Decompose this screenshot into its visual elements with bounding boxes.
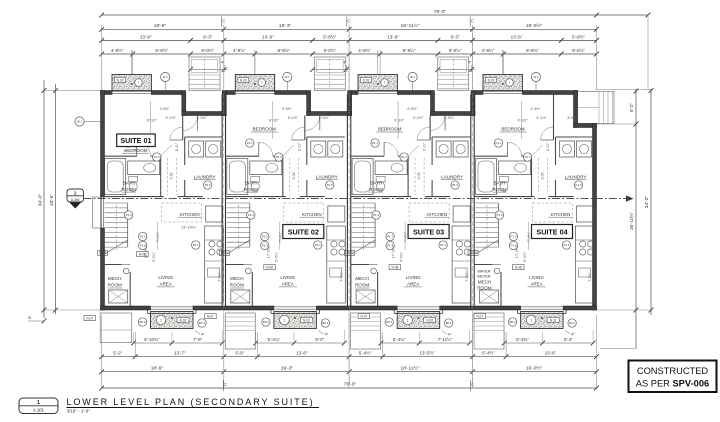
svg-text:5'-10¾": 5'-10¾" [144, 337, 160, 342]
svg-text:AREA: AREA [407, 282, 419, 287]
svg-text:5'-9½": 5'-9½" [572, 33, 585, 39]
svg-text:1: 1 [37, 400, 40, 406]
svg-text:P1.1: P1.1 [564, 243, 570, 247]
svg-text:LAUNDRY: LAUNDRY [565, 174, 587, 179]
svg-text:18'-11½": 18'-11½" [401, 365, 420, 372]
svg-text:7'-11½": 7'-11½" [438, 336, 453, 342]
svg-text:5'-3¾": 5'-3¾" [516, 337, 529, 342]
svg-text:76'-0": 76'-0" [344, 382, 357, 388]
svg-text:13'-6": 13'-6" [511, 34, 523, 39]
svg-text:7'-5¾": 7'-5¾" [588, 271, 592, 281]
svg-text:SUITE 04: SUITE 04 [536, 227, 567, 236]
svg-text:SUITE 01: SUITE 01 [120, 136, 151, 145]
svg-text:P1.1: P1.1 [247, 141, 253, 145]
svg-text:C: C [347, 19, 350, 24]
svg-text:N.07: N.07 [361, 315, 368, 319]
svg-text:D.08: D.08 [541, 172, 545, 179]
svg-text:LOWER LEVEL PLAN (SECONDARY SU: LOWER LEVEL PLAN (SECONDARY SUITE) [67, 397, 315, 407]
svg-text:P1.3: P1.3 [497, 213, 503, 217]
svg-text:MECH: MECH [108, 276, 122, 281]
svg-text:19'-3": 19'-3" [281, 366, 294, 372]
svg-text:5'-4¾": 5'-4¾" [267, 337, 280, 342]
svg-text:KITCHEN: KITCHEN [180, 212, 200, 217]
svg-text:1: 1 [407, 318, 409, 322]
svg-text:LIVING: LIVING [158, 275, 173, 280]
svg-text:AREA: AREA [530, 282, 542, 287]
svg-text:4'-1½": 4'-1½" [413, 116, 424, 120]
svg-text:N.02: N.02 [426, 318, 433, 322]
svg-text:8": 8" [27, 315, 32, 319]
svg-text:4'-9¾": 4'-9¾" [319, 116, 330, 120]
svg-text:1: 1 [530, 318, 532, 322]
svg-text:9'-10": 9'-10" [269, 118, 280, 123]
svg-text:4'-9¾": 4'-9¾" [196, 116, 207, 120]
svg-text:9'-10": 9'-10" [517, 118, 528, 123]
svg-text:4'-9¾": 4'-9¾" [444, 116, 455, 120]
svg-text:33'-6": 33'-6" [49, 194, 54, 206]
svg-text:8'-9½": 8'-9½" [155, 47, 168, 53]
svg-text:13'-9": 13'-9" [262, 34, 274, 39]
svg-text:BEDROOM: BEDROOM [253, 127, 277, 132]
svg-text:ROOM: ROOM [355, 283, 369, 288]
svg-text:W.1: W.1 [410, 75, 415, 79]
svg-text:34'-0": 34'-0" [38, 194, 44, 207]
svg-text:P1.1: P1.1 [496, 141, 502, 145]
svg-text:B0.2: B0.2 [140, 320, 146, 324]
svg-text:BATH: BATH [370, 181, 382, 186]
svg-text:7'-4¾": 7'-4¾" [527, 231, 531, 242]
svg-text:B0.2: B0.2 [510, 320, 516, 324]
svg-text:P1.4: P1.4 [154, 155, 160, 159]
svg-text:18'-11½": 18'-11½" [401, 22, 420, 29]
svg-text:MECH: MECH [478, 280, 492, 285]
svg-text:P1.3: P1.3 [126, 213, 132, 217]
svg-text:W.1: W.1 [285, 75, 290, 79]
svg-text:P1.1: P1.1 [372, 141, 378, 145]
svg-text:AS PER SPV-006: AS PER SPV-006 [636, 379, 709, 389]
svg-text:1: 1 [284, 318, 286, 322]
svg-text:18'-9": 18'-9" [151, 366, 164, 372]
svg-text:5'-4½": 5'-4½" [359, 350, 372, 356]
svg-text:C: C [471, 19, 474, 24]
svg-text:4": 4" [221, 60, 225, 65]
svg-text:13'-7": 13'-7" [174, 351, 186, 356]
svg-text:N.02: N.02 [488, 78, 495, 82]
svg-text:13'-5½": 13'-5½" [419, 350, 435, 356]
svg-text:18'-9": 18'-9" [154, 23, 167, 29]
svg-text:ROOM: ROOM [122, 187, 136, 192]
svg-text:BEDROOM: BEDROOM [501, 127, 525, 132]
svg-text:C: C [222, 19, 225, 24]
svg-text:9'-0½": 9'-0½" [201, 47, 214, 53]
svg-text:P1.4: P1.4 [276, 155, 282, 159]
svg-text:4'-9¾": 4'-9¾" [567, 116, 578, 120]
svg-text:LIVING: LIVING [529, 275, 544, 280]
svg-text:5'-0¾": 5'-0¾" [274, 251, 278, 262]
svg-text:W.1: W.1 [77, 120, 82, 124]
svg-text:P1.3: P1.3 [262, 235, 268, 239]
svg-text:B0.1: B0.1 [446, 321, 452, 325]
svg-text:5'-4¾": 5'-4¾" [393, 337, 406, 342]
svg-text:4": 4" [325, 332, 329, 337]
svg-text:17'-3¾": 17'-3¾" [392, 245, 396, 258]
svg-text:P1.3: P1.3 [248, 213, 254, 217]
svg-text:BATH: BATH [123, 181, 135, 186]
svg-text:4": 4" [448, 332, 452, 337]
svg-text:N.07: N.07 [86, 317, 93, 321]
svg-text:AREA: AREA [282, 282, 294, 287]
svg-text:7'-4¾": 7'-4¾" [278, 231, 282, 242]
svg-text:5'-2": 5'-2" [629, 103, 634, 112]
svg-text:5'-9": 5'-9" [235, 351, 244, 356]
svg-text:METER: METER [477, 275, 491, 279]
svg-text:7'-4¾": 7'-4¾" [156, 231, 160, 242]
svg-text:P1.4: P1.4 [525, 155, 531, 159]
svg-text:P1.6: P1.6 [452, 183, 458, 187]
svg-text:D.08: D.08 [417, 172, 421, 179]
svg-text:8'-4": 8'-4" [564, 337, 573, 342]
svg-text:P1.6: P1.6 [327, 183, 333, 187]
svg-text:N.08: N.08 [515, 266, 522, 270]
svg-text:N.02: N.02 [180, 318, 187, 322]
svg-text:6'-11": 6'-11" [423, 142, 427, 151]
svg-text:9'-0½": 9'-0½" [323, 47, 336, 53]
svg-text:WATER: WATER [477, 270, 491, 274]
svg-text:4'-1½": 4'-1½" [165, 116, 176, 120]
svg-text:A.101: A.101 [33, 408, 45, 413]
svg-text:4'-9½": 4'-9½" [233, 47, 246, 53]
svg-text:P1.4: P1.4 [401, 155, 407, 159]
svg-text:N.02: N.02 [240, 78, 247, 82]
svg-text:13'-6": 13'-6" [545, 351, 557, 356]
svg-text:26'-10½": 26'-10½" [628, 212, 634, 230]
svg-text:4'-9½": 4'-9½" [111, 47, 124, 53]
svg-text:P1.1: P1.1 [440, 243, 446, 247]
svg-text:KITCHEN: KITCHEN [427, 212, 447, 217]
svg-text:B0.2: B0.2 [386, 320, 392, 324]
svg-text:P1.6: P1.6 [576, 183, 582, 187]
svg-text:76'-0": 76'-0" [434, 9, 447, 15]
svg-text:9'-10": 9'-10" [394, 118, 405, 123]
svg-text:ROOM: ROOM [230, 283, 244, 288]
svg-text:B0.1: B0.1 [199, 321, 205, 325]
svg-text:LAUNDRY: LAUNDRY [316, 174, 338, 179]
svg-text:BATH: BATH [245, 181, 257, 186]
svg-text:3/16" - 1'-0": 3/16" - 1'-0" [67, 408, 91, 413]
svg-text:LIVING: LIVING [280, 275, 295, 280]
svg-text:N.07: N.07 [476, 315, 483, 319]
svg-text:4'-5½": 4'-5½" [160, 107, 171, 111]
svg-text:6'-11": 6'-11" [175, 142, 179, 151]
svg-text:ROOM: ROOM [244, 187, 258, 192]
svg-text:13'-6": 13'-6" [296, 351, 308, 356]
svg-text:SUITE 02: SUITE 02 [288, 227, 319, 236]
svg-text:13'-6": 13'-6" [387, 34, 399, 39]
svg-text:N.02: N.02 [550, 318, 557, 322]
svg-text:KITCHEN: KITCHEN [302, 212, 322, 217]
svg-text:P1.3: P1.3 [511, 235, 517, 239]
svg-text:C: C [224, 382, 227, 387]
svg-text:5'-8½": 5'-8½" [323, 33, 336, 39]
svg-text:CONSTRUCTED: CONSTRUCTED [637, 366, 709, 376]
svg-text:17'-3¾": 17'-3¾" [144, 245, 148, 258]
svg-text:8'-9½": 8'-9½" [403, 47, 416, 53]
svg-text:ROOM: ROOM [492, 187, 506, 192]
svg-text:4'-5½": 4'-5½" [531, 107, 542, 111]
svg-text:4'-9½": 4'-9½" [358, 47, 371, 53]
svg-text:7'-4¾": 7'-4¾" [404, 231, 408, 242]
svg-text:SUITE 03: SUITE 03 [413, 227, 444, 236]
svg-text:P1.3: P1.3 [140, 235, 146, 239]
svg-text:BEDROOM: BEDROOM [378, 127, 402, 132]
svg-text:9'-0½": 9'-0½" [449, 47, 462, 53]
svg-text:19'-0½": 19'-0½" [526, 22, 543, 29]
svg-text:MECH: MECH [355, 276, 369, 281]
svg-text:19'-3": 19'-3" [279, 23, 292, 29]
svg-text:9'-3": 9'-3" [203, 34, 213, 39]
svg-text:W.1: W.1 [163, 75, 168, 79]
svg-text:7'-5¾": 7'-5¾" [217, 271, 221, 281]
svg-text:5'-0¾": 5'-0¾" [152, 251, 156, 262]
svg-text:LIVING: LIVING [406, 275, 421, 280]
svg-text:6'-11": 6'-11" [297, 142, 301, 151]
svg-text:4'-1½": 4'-1½" [288, 116, 299, 120]
svg-text:1: 1 [160, 318, 162, 322]
svg-text:P1.1: P1.1 [315, 243, 321, 247]
svg-text:5'-0¾": 5'-0¾" [400, 251, 404, 262]
svg-text:N.08: N.08 [266, 266, 273, 270]
svg-text:D.08: D.08 [170, 172, 174, 179]
svg-text:A.300: A.300 [71, 198, 80, 202]
svg-text:ROOM: ROOM [108, 283, 122, 288]
svg-text:13'-9": 13'-9" [140, 34, 152, 39]
svg-text:N.08: N.08 [392, 266, 399, 270]
svg-text:5'-2": 5'-2" [113, 351, 122, 356]
svg-text:4'-9½": 4'-9½" [482, 47, 495, 53]
svg-text:17'-3¾": 17'-3¾" [266, 245, 270, 258]
svg-text:P1.1: P1.1 [193, 243, 199, 247]
svg-text:D.08: D.08 [292, 172, 296, 179]
svg-text:BEDROOM: BEDROOM [124, 148, 148, 153]
svg-text:AREA: AREA [160, 282, 172, 287]
svg-text:B0.1: B0.1 [569, 321, 575, 325]
svg-text:8'-9½": 8'-9½" [526, 47, 539, 53]
svg-text:B0.1: B0.1 [322, 321, 328, 325]
svg-text:8'-0": 8'-0" [315, 337, 324, 342]
svg-text:MECH: MECH [230, 276, 244, 281]
svg-text:13'-10¾": 13'-10¾" [181, 225, 197, 230]
svg-text:BATH: BATH [494, 181, 506, 186]
svg-text:9'-3": 9'-3" [451, 34, 461, 39]
svg-text:17'-3¾": 17'-3¾" [515, 245, 519, 258]
svg-text:P1.3: P1.3 [373, 213, 379, 217]
svg-text:9'-0½": 9'-0½" [572, 47, 585, 53]
svg-text:5'-4½": 5'-4½" [482, 350, 495, 356]
svg-text:B0.2: B0.2 [263, 320, 269, 324]
svg-text:9'-10": 9'-10" [147, 118, 158, 123]
svg-text:34'-0": 34'-0" [644, 196, 650, 209]
svg-text:6'-11": 6'-11" [546, 142, 550, 151]
svg-text:4": 4" [571, 332, 575, 337]
svg-text:4'-1½": 4'-1½" [536, 116, 547, 120]
svg-text:19'-0½": 19'-0½" [526, 365, 543, 372]
svg-text:5'-0¾": 5'-0¾" [523, 251, 527, 262]
svg-text:4'-5½": 4'-5½" [282, 107, 293, 111]
svg-text:N.02: N.02 [303, 318, 310, 322]
svg-text:4'-5½": 4'-5½" [407, 107, 418, 111]
svg-text:W.1: W.1 [534, 75, 539, 79]
svg-text:4": 4" [201, 332, 205, 337]
svg-text:N.02: N.02 [363, 78, 370, 82]
svg-text:8'-9½": 8'-9½" [277, 47, 290, 53]
svg-text:7'-5¾": 7'-5¾" [465, 271, 469, 281]
svg-text:LAUNDRY: LAUNDRY [194, 174, 216, 179]
svg-text:7'-5¾": 7'-5¾" [340, 271, 344, 281]
svg-text:N.07: N.07 [207, 315, 214, 319]
svg-text:7'-9": 7'-9" [193, 337, 202, 342]
svg-text:LAUNDRY: LAUNDRY [441, 174, 463, 179]
svg-text:N.02: N.02 [117, 78, 124, 82]
svg-text:P1.6: P1.6 [205, 183, 211, 187]
svg-text:KITCHEN: KITCHEN [551, 212, 571, 217]
svg-text:P1.3: P1.3 [387, 235, 393, 239]
svg-text:ROOM: ROOM [369, 187, 383, 192]
svg-text:ROOM: ROOM [477, 286, 491, 291]
